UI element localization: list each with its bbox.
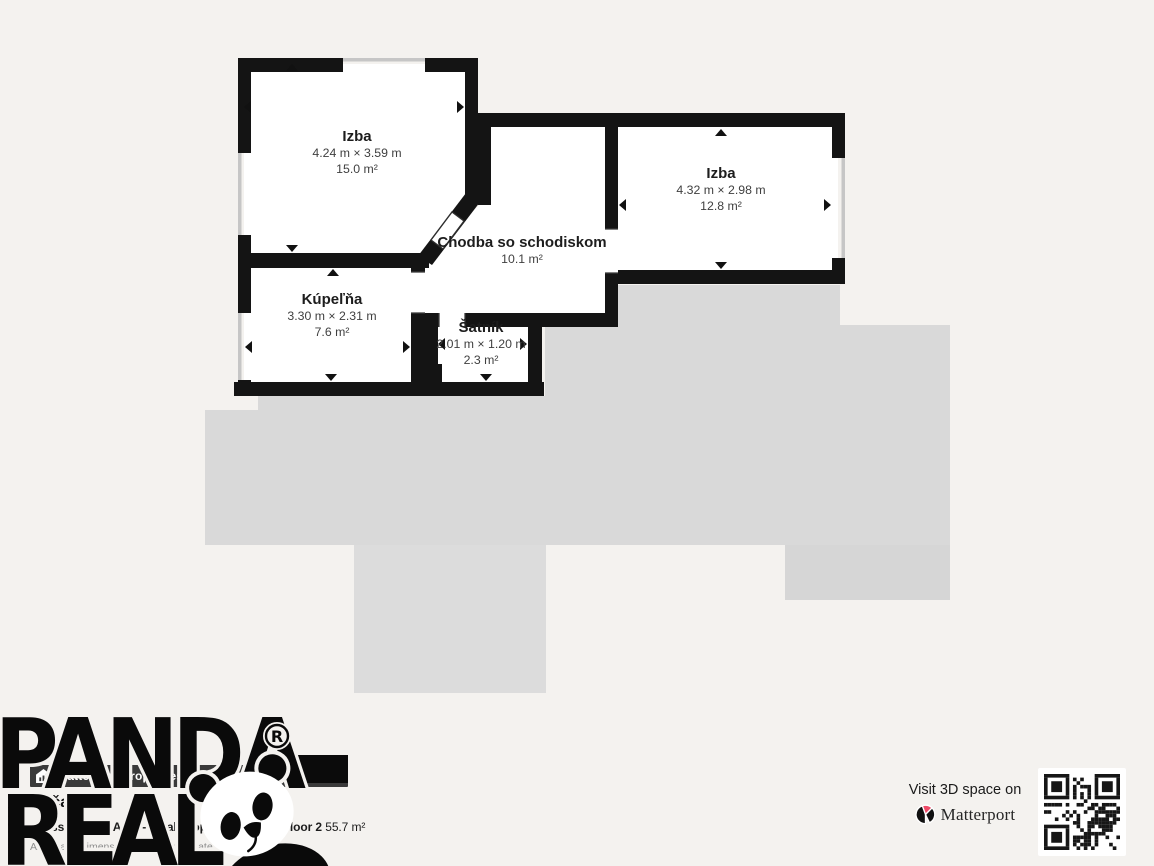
area-summary: Gross Internal Area - Total Property 78.…	[30, 820, 365, 834]
gross-area-value: 78.1 m²	[232, 820, 272, 834]
floor-label: Floor 2	[283, 820, 322, 834]
matterport-promo: Visit 3D space on Matterport	[900, 782, 1030, 825]
floor-area-value: 55.7 m²	[325, 820, 365, 834]
matterport-logo: Matterport	[900, 804, 1030, 825]
floorplan-drawing	[0, 0, 1154, 866]
gross-area-label: Gross Internal Area - Total Property	[30, 820, 228, 834]
door-kupelna	[411, 271, 425, 314]
visit-3d-text: Visit 3D space on	[900, 782, 1030, 798]
banner-bar: Matterport Properties	[30, 765, 348, 787]
matterport-pinwheel-icon	[915, 804, 936, 825]
qr-code	[1038, 768, 1126, 856]
door-izba-right	[605, 228, 618, 274]
door-satnik	[438, 313, 466, 327]
house-chart-icon	[36, 769, 51, 783]
banner-label: Matterport Properties	[57, 769, 183, 783]
location-name: Oščadnica	[30, 794, 111, 812]
matterport-wordmark: Matterport	[941, 805, 1016, 825]
floorplan-page: Izba 4.24 m × 3.59 m 15.0 m² Izba 4.32 m…	[0, 0, 1154, 866]
qr-code-pattern	[1038, 768, 1126, 856]
disclaimer-text: Areas and dimensions are approximate, ac…	[30, 841, 292, 853]
separator: |	[272, 820, 283, 834]
